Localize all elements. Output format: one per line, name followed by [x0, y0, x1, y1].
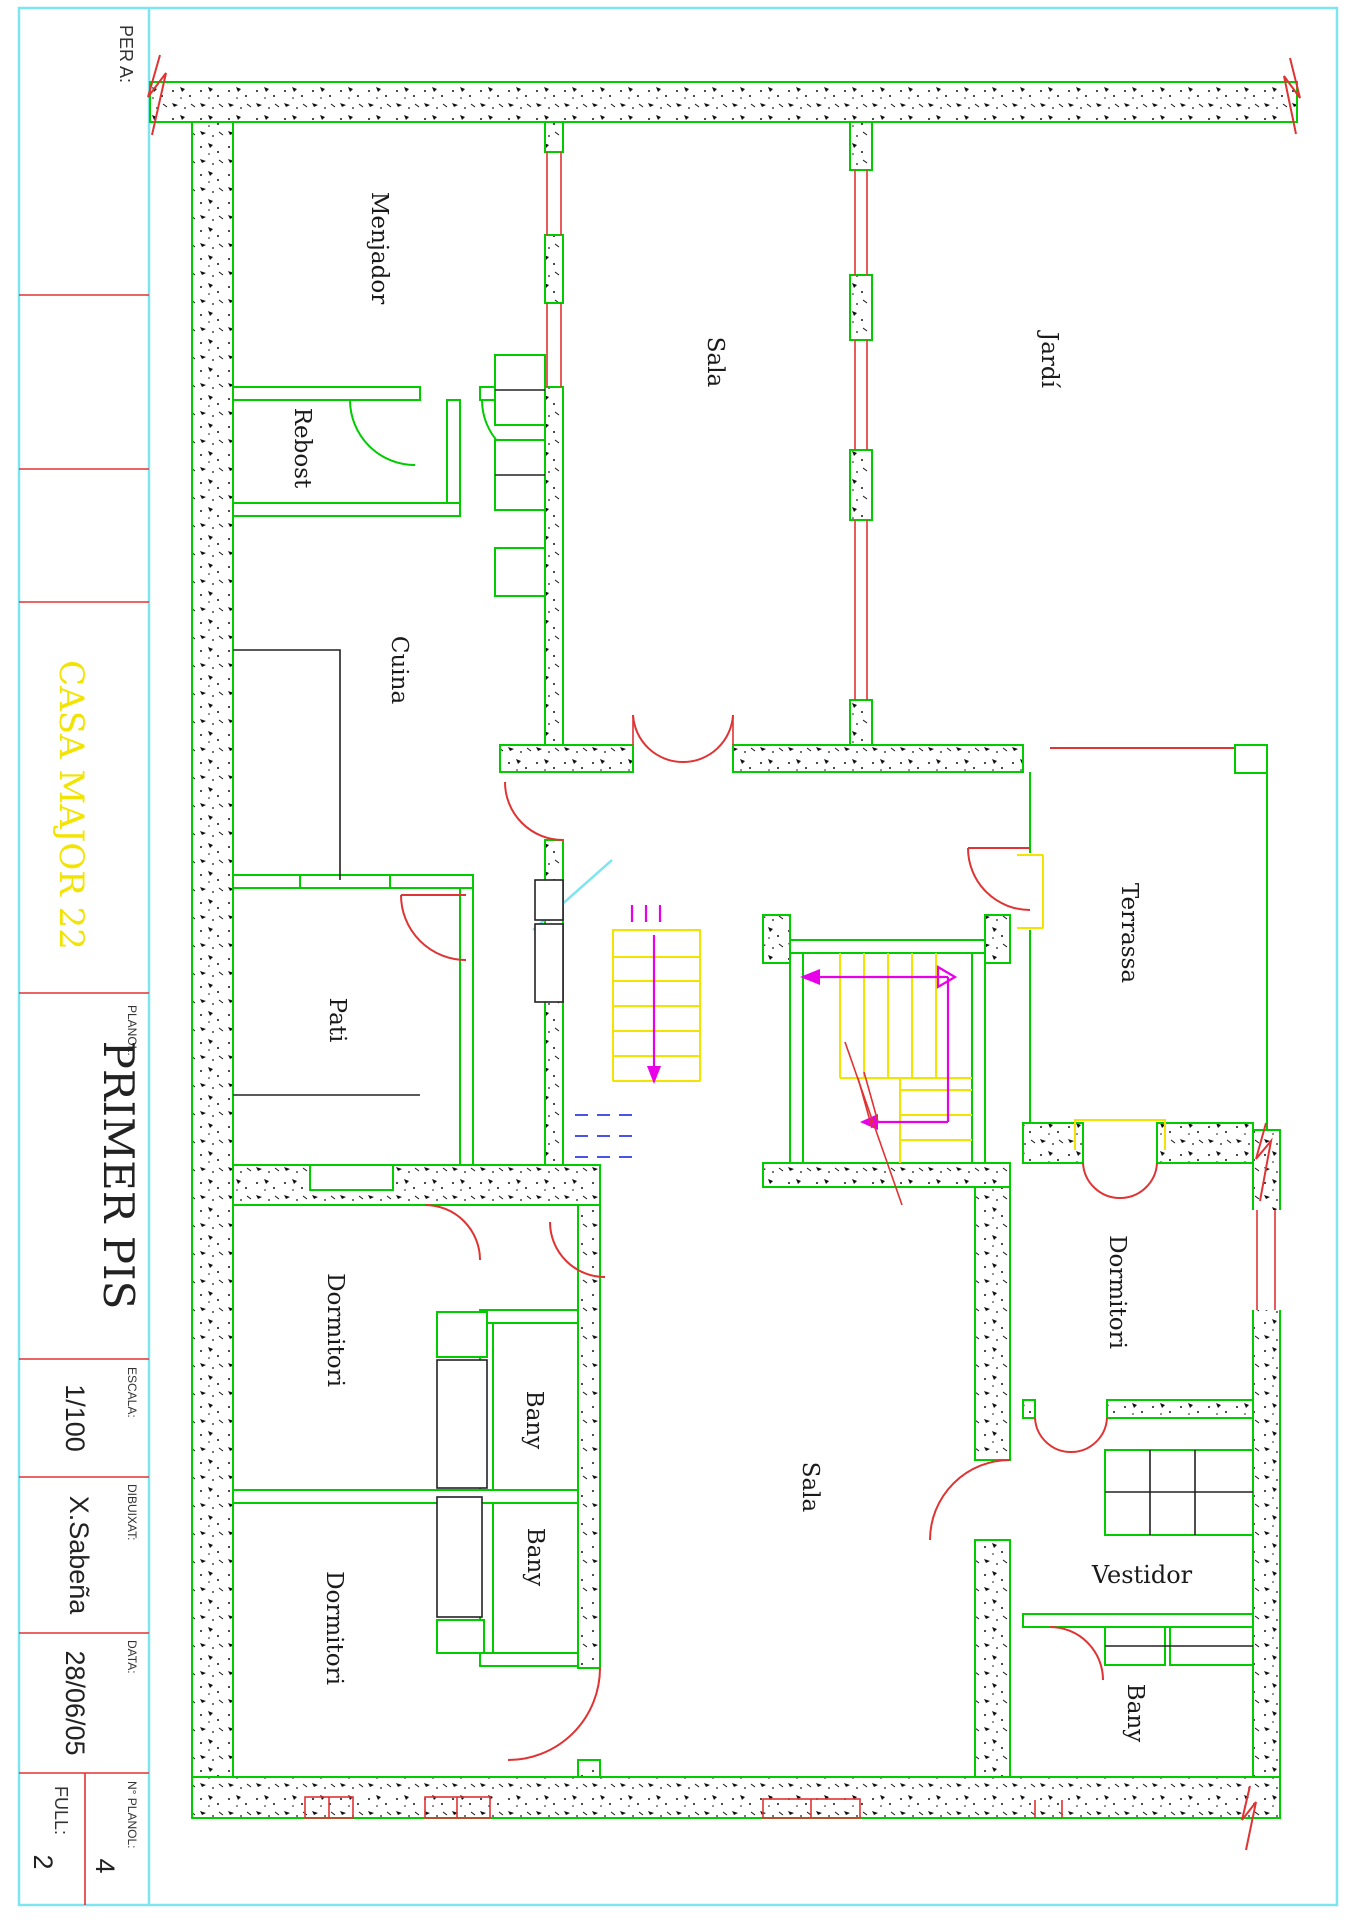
- hall-fixtures: [535, 880, 563, 1002]
- sala-double-door: [633, 715, 733, 762]
- terrassa-door-arc: [968, 848, 1030, 910]
- hall-door-arc: [505, 782, 563, 840]
- room-label-dormitori-2: Dormitori: [321, 1571, 347, 1685]
- rebost-door-arc: [350, 400, 415, 465]
- room-label-dormitori-1: Dormitori: [322, 1273, 348, 1387]
- jardi-glazing: [855, 170, 867, 700]
- room-label-bany-2: Bany: [522, 1528, 548, 1586]
- dormitori1-door-arc: [425, 1205, 480, 1260]
- escala-value: 1/100: [60, 1384, 90, 1452]
- room-label-terrassa: Terrassa: [1116, 883, 1142, 983]
- bany3-door-arc: [1050, 1627, 1103, 1680]
- stair-entry-ticks: [632, 905, 660, 922]
- sala-vestidor-door-arc: [930, 1460, 1010, 1540]
- pati-door-arc: [401, 895, 466, 960]
- room-label-sala-nord: Sala: [702, 337, 728, 388]
- num-planol-value: 4: [90, 1858, 120, 1873]
- fixtures: [233, 355, 1253, 1665]
- room-labels: Menjador Rebost Cuina Sala Jardí Terrass…: [289, 192, 1193, 1742]
- room-label-cuina: Cuina: [386, 636, 412, 705]
- num-planol-label: N° PLANOL:: [125, 1781, 139, 1849]
- stair-hidden-treads: [575, 1115, 635, 1157]
- room-label-dormitori-3: Dormitori: [1104, 1235, 1130, 1349]
- project-title: CASA MAJOR 22: [51, 660, 91, 950]
- per-a-label: PER A:: [116, 25, 136, 83]
- dibuixat-value: X.Sabeña: [64, 1496, 94, 1616]
- bany1-fixtures: [437, 1312, 487, 1488]
- dormitori2-door-arc: [508, 1668, 600, 1760]
- data-label: DATA:: [125, 1640, 139, 1674]
- dibuixat-label: DIBUIXAT:: [125, 1484, 139, 1540]
- cad-drawing: PER A: CASA MAJOR 22 PLANOL: PRIMER PIS …: [0, 0, 1357, 1920]
- cuina-counter: [233, 650, 340, 880]
- dormitori3-double-door: [1083, 1163, 1157, 1198]
- vestidor-double-door: [1035, 1418, 1107, 1452]
- room-label-pati: Pati: [324, 998, 350, 1043]
- bany3-fixtures: [1105, 1627, 1253, 1665]
- floor-plan-sheet: PER A: CASA MAJOR 22 PLANOL: PRIMER PIS …: [0, 0, 1357, 1920]
- room-label-menjador: Menjador: [366, 192, 392, 304]
- room-label-bany-1: Bany: [521, 1391, 547, 1449]
- room-label-sala-sud: Sala: [797, 1462, 823, 1513]
- escala-label: ESCALA:: [125, 1367, 139, 1418]
- full-label: FULL:: [51, 1786, 71, 1835]
- title-block-texts: PER A: CASA MAJOR 22 PLANOL: PRIMER PIS …: [28, 25, 143, 1874]
- planol-value: PRIMER PIS: [94, 1041, 143, 1310]
- room-label-jardi: Jardí: [1036, 330, 1062, 389]
- dormitori3-window-frame: [1075, 1120, 1165, 1150]
- room-label-bany-3: Bany: [1122, 1684, 1148, 1742]
- full-value: 2: [28, 1854, 58, 1869]
- data-value: 28/06/05: [60, 1650, 90, 1755]
- room-label-vestidor: Vestidor: [1091, 1561, 1193, 1589]
- room-label-rebost: Rebost: [289, 408, 315, 489]
- vestidor-wardrobe: [1105, 1450, 1253, 1535]
- bany2-fixtures: [437, 1497, 484, 1653]
- cuina-cabinets: [233, 355, 545, 1095]
